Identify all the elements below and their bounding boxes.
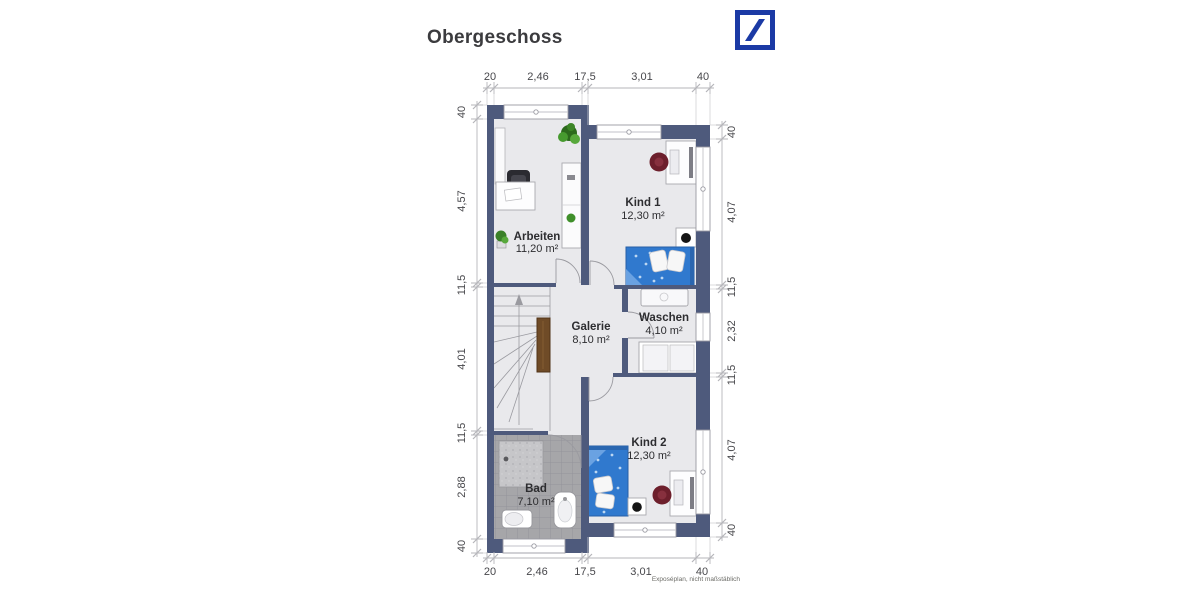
room-area-waschen: 4,10 m² (645, 325, 683, 337)
room-area-arbeiten: 11,20 m² (516, 243, 559, 255)
room-area-kind2: 12,30 m² (627, 450, 671, 462)
dimension-labels-top: 20 2,46 17,5 3,01 40 (484, 71, 709, 83)
dim-left-0: 40 (456, 106, 468, 118)
monitor (689, 147, 693, 178)
dim-left-5: 2,88 (456, 476, 468, 497)
laptop (504, 188, 521, 201)
window (597, 125, 661, 139)
dim-top-3: 3,01 (631, 71, 652, 83)
dim-right-1: 4,07 (726, 201, 738, 222)
dimension-labels-right: 40 4,07 11,5 2,32 11,5 4,07 40 (726, 126, 738, 536)
monitor (690, 477, 694, 509)
dim-bottom-2: 17,5 (574, 566, 595, 578)
plan-footnote: Exposéplan, nicht maßstäblich (652, 576, 741, 583)
dim-top-1: 2,46 (527, 71, 548, 83)
dim-right-4: 11,5 (726, 365, 738, 386)
dim-left-4: 11,5 (456, 423, 468, 444)
room-label-bad: Bad (525, 483, 547, 495)
dim-bottom-3: 3,01 (630, 566, 651, 578)
room-label-kind1: Kind 1 (625, 197, 661, 209)
dim-top-2: 17,5 (574, 71, 595, 83)
keyboard (674, 480, 683, 505)
dim-right-2: 11,5 (726, 277, 738, 298)
shower-area (499, 441, 543, 487)
washing-machine (641, 289, 688, 306)
dim-right-0: 40 (726, 126, 738, 138)
dim-right-6: 40 (726, 524, 738, 536)
dim-top-0: 20 (484, 71, 496, 83)
dim-bottom-0: 20 (484, 566, 496, 578)
speaker-icon (681, 233, 691, 243)
dim-right-3: 2,32 (726, 320, 738, 341)
window (614, 523, 676, 537)
room-area-kind1: 12,30 m² (621, 210, 665, 222)
room-area-galerie: 8,10 m² (572, 334, 610, 346)
shelf (495, 128, 505, 184)
bed (588, 446, 628, 516)
room-label-arbeiten: Arbeiten (514, 231, 561, 243)
room-label-kind2: Kind 2 (631, 437, 666, 449)
dim-bottom-1: 2,46 (526, 566, 547, 578)
dimension-labels-left: 40 4,57 11,5 4,01 11,5 2,88 40 (456, 106, 468, 552)
bed (626, 247, 694, 287)
room-label-waschen: Waschen (639, 312, 689, 324)
speaker-icon (632, 502, 642, 512)
dim-left-3: 4,01 (456, 348, 468, 369)
room-label-galerie: Galerie (572, 321, 611, 333)
window (503, 539, 565, 553)
dim-left-6: 40 (456, 540, 468, 552)
dim-left-2: 11,5 (456, 275, 468, 296)
pillow (666, 250, 685, 272)
window (696, 430, 710, 514)
pillow (595, 493, 615, 509)
dim-top-4: 40 (697, 71, 709, 83)
shower-drain-icon (504, 457, 509, 462)
dim-right-5: 4,07 (726, 439, 738, 460)
stair-wood-railing (537, 318, 550, 372)
dim-left-1: 4,57 (456, 190, 468, 211)
window (696, 313, 710, 341)
window (504, 105, 568, 119)
window (696, 147, 710, 231)
floorplan: Arbeiten 11,20 m² Kind 1 12,30 m² Galeri… (0, 0, 1200, 600)
room-area-bad: 7,10 m² (517, 496, 555, 508)
keyboard (670, 150, 679, 174)
pillow (593, 476, 613, 494)
